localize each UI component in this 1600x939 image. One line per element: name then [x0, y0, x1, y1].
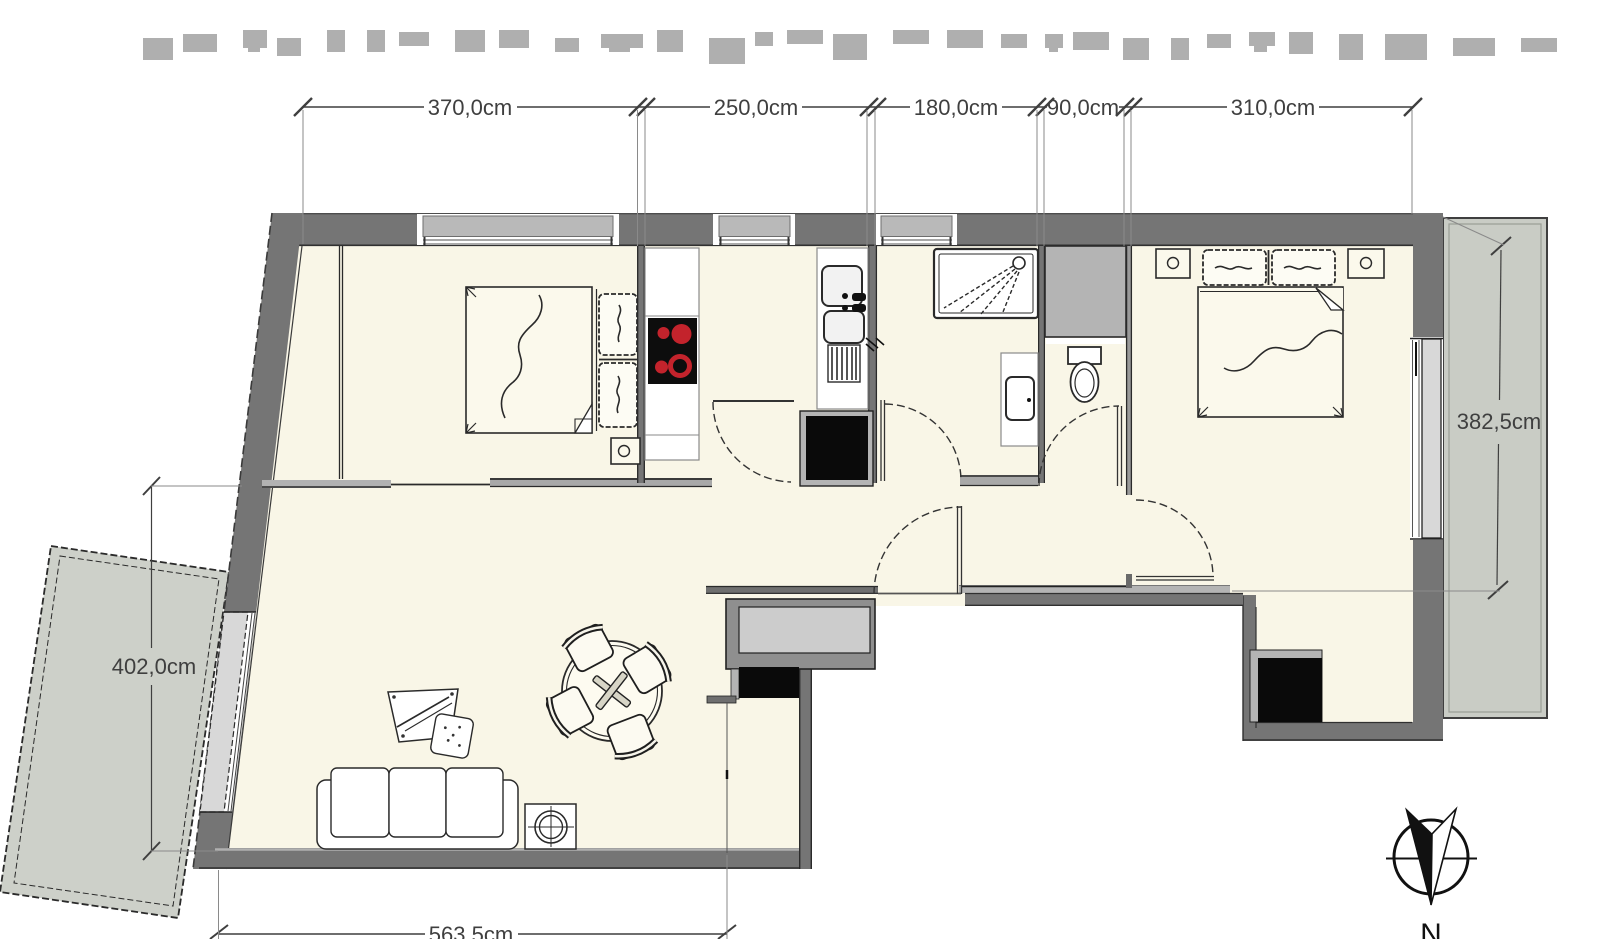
- svg-text:563,5cm: 563,5cm: [429, 922, 513, 939]
- svg-text:250,0cm: 250,0cm: [714, 95, 798, 120]
- svg-text:402,0cm: 402,0cm: [112, 654, 196, 679]
- svg-text:310,0cm: 310,0cm: [1231, 95, 1315, 120]
- svg-text:382,5cm: 382,5cm: [1457, 409, 1541, 434]
- svg-text:180,0cm: 180,0cm: [914, 95, 998, 120]
- svg-text:370,0cm: 370,0cm: [428, 95, 512, 120]
- svg-text:N: N: [1420, 918, 1442, 939]
- svg-text:90,0cm: 90,0cm: [1047, 95, 1119, 120]
